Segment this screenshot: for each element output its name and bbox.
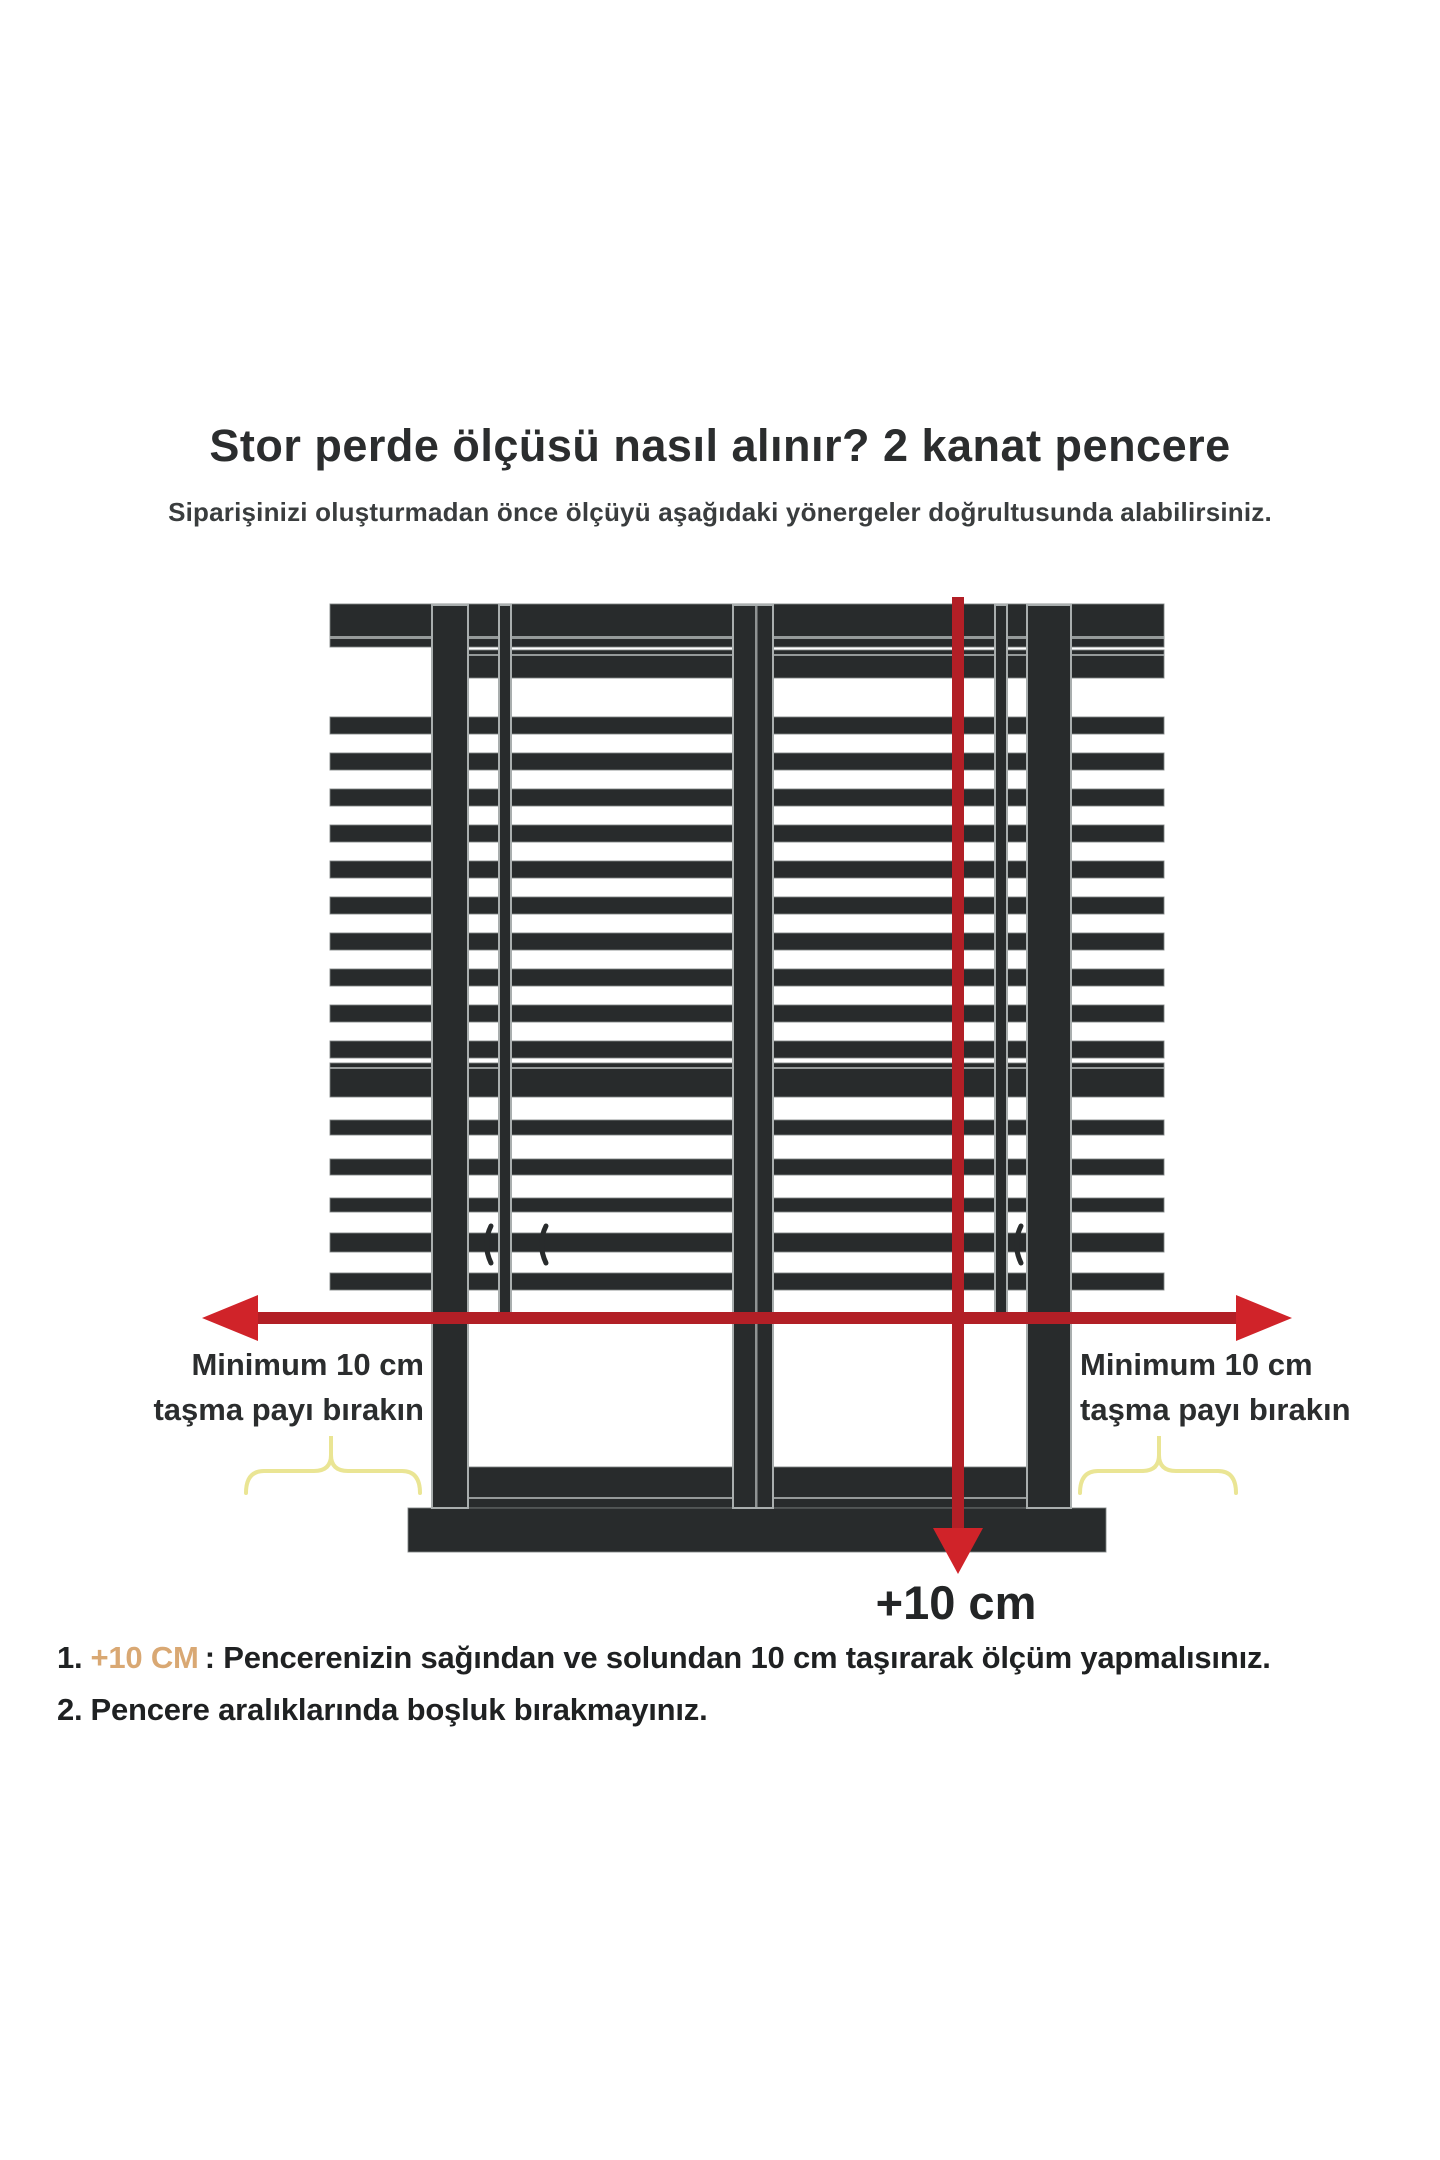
measurement-guide-page: Stor perde ölçüsü nasıl alınır? 2 kanat … [0, 0, 1440, 2160]
mullion-divider-line [755, 605, 758, 1508]
height-arrow-shaft [952, 597, 964, 1532]
instruction-2-number: 2. [57, 1692, 82, 1727]
left-frame-post [432, 605, 468, 1508]
left-sash-stile [499, 605, 511, 1313]
right-overflow-brace [1080, 1436, 1236, 1493]
right-sash-stile [995, 605, 1007, 1313]
center-mullion [733, 605, 773, 1508]
left-overflow-label-line2: taşma payı bırakın [60, 1387, 424, 1432]
instruction-item-1: 1.+10 CM: Pencerenizin sağından ve solun… [57, 1640, 1417, 1676]
window-measurement-diagram [0, 0, 1440, 2160]
instruction-2-text: Pencere aralıklarında boşluk bırakmayını… [90, 1692, 707, 1727]
width-arrow-right-head [1236, 1295, 1292, 1341]
left-overflow-label: Minimum 10 cm taşma payı bırakın [60, 1342, 424, 1432]
left-overflow-brace [246, 1436, 420, 1493]
instruction-list: 1.+10 CM: Pencerenizin sağından ve solun… [57, 1640, 1417, 1744]
instruction-1-highlight: +10 CM [90, 1640, 198, 1675]
instruction-item-2: 2.Pencere aralıklarında boşluk bırakmayı… [57, 1692, 1417, 1728]
height-arrow-label: +10 cm [800, 1575, 1112, 1630]
instruction-1-number: 1. [57, 1640, 82, 1675]
window-sill [408, 1508, 1106, 1552]
right-overflow-label-line1: Minimum 10 cm [1080, 1342, 1420, 1387]
width-arrow-shaft [248, 1312, 1242, 1324]
instruction-1-text: : Pencerenizin sağından ve solundan 10 c… [205, 1640, 1271, 1675]
right-overflow-label-line2: taşma payı bırakın [1080, 1387, 1420, 1432]
left-overflow-label-line1: Minimum 10 cm [60, 1342, 424, 1387]
right-frame-post [1027, 605, 1071, 1508]
width-arrow-left-head [202, 1295, 258, 1341]
right-overflow-label: Minimum 10 cm taşma payı bırakın [1080, 1342, 1420, 1432]
